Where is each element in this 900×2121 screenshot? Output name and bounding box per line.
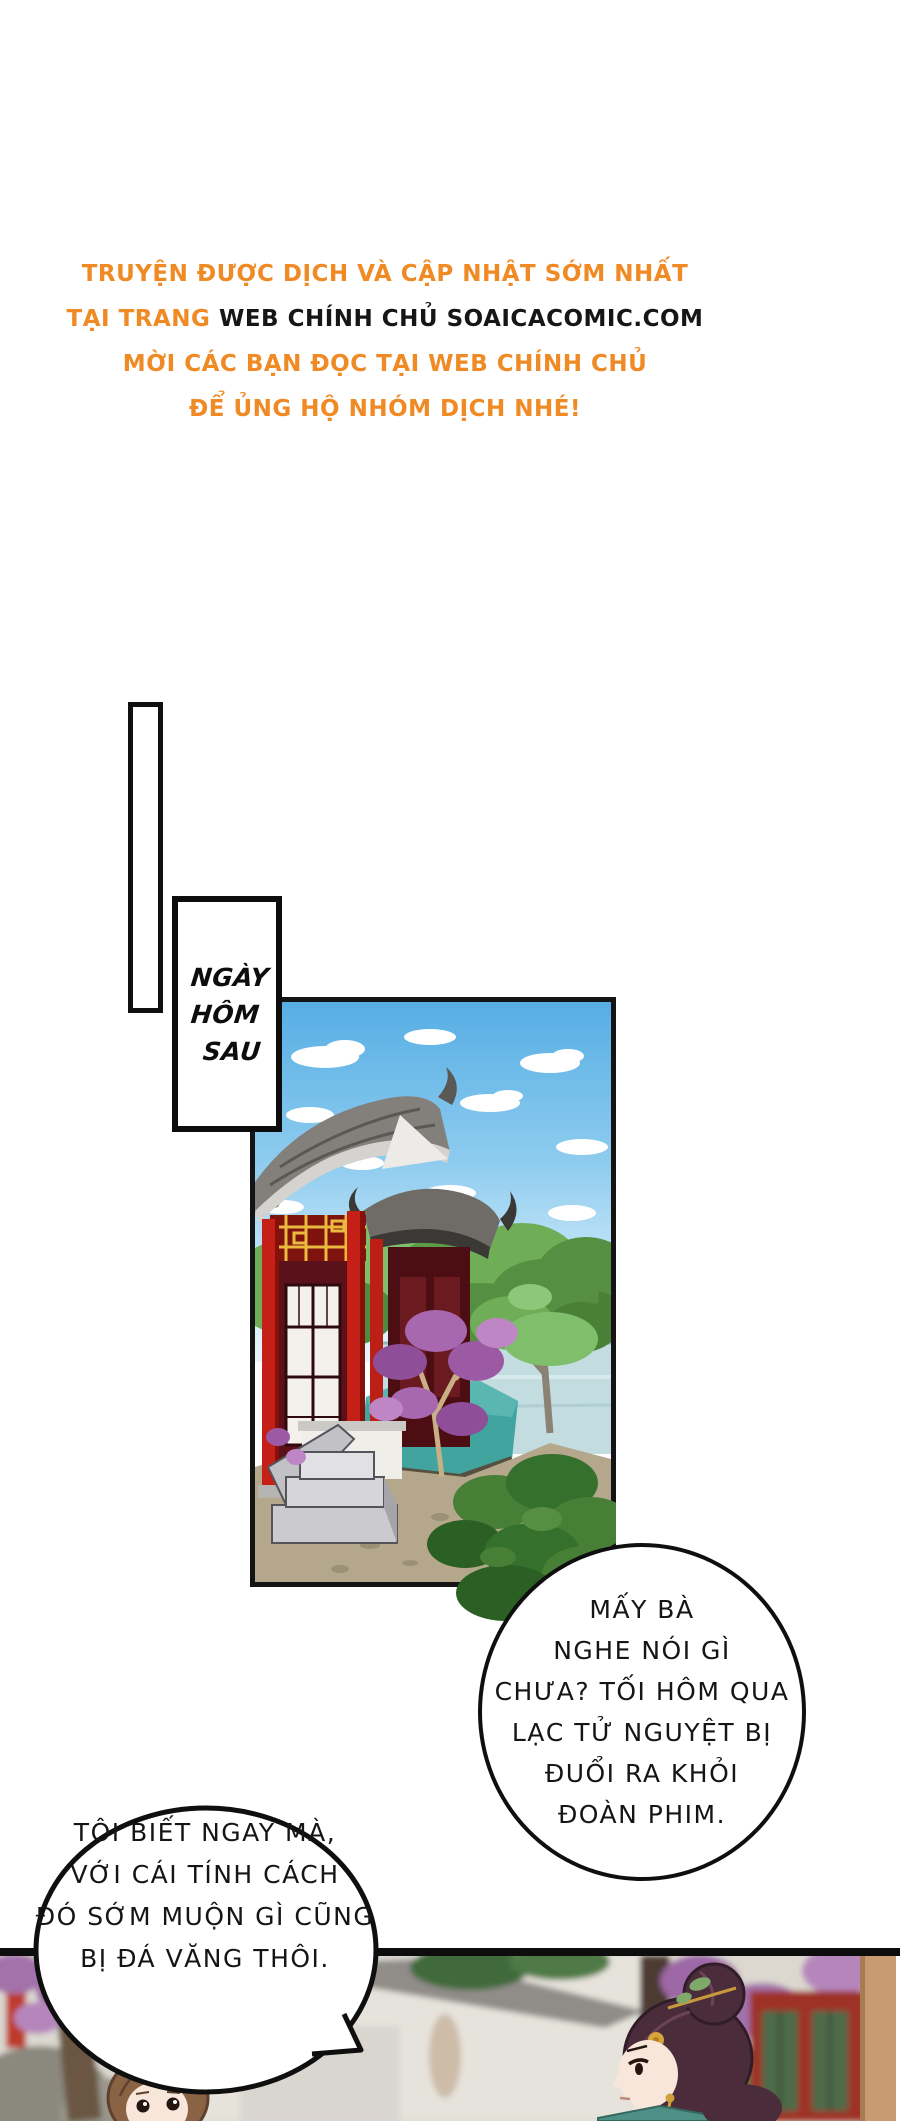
credits-site-name: WEB CHÍNH CHỦ SOAICACOMIC.COM [219, 306, 703, 332]
caption-line: HÔM [189, 996, 261, 1033]
reply-bubble-text: TÔI BIẾT NGAY MÀ, VỚI CÁI TÍNH CÁCH ĐÓ S… [30, 1812, 380, 1980]
credits-line-1: TRUYỆN ĐƯỢC DỊCH VÀ CẬP NHẬT SỚM NHẤT [20, 252, 750, 297]
bubble-line: ĐÓ SỚM MUỘN GÌ CŨNG [30, 1896, 380, 1938]
credits-line-4: ĐỂ ỦNG HỘ NHÓM DỊCH NHÉ! [20, 387, 750, 432]
comic-page: TRUYỆN ĐƯỢC DỊCH VÀ CẬP NHẬT SỚM NHẤT TẠ… [0, 0, 900, 2121]
credits-line-2: TẠI TRANG WEB CHÍNH CHỦ SOAICACOMIC.COM [20, 297, 750, 342]
time-caption-box: NGÀY HÔM SAU [172, 896, 282, 1132]
right-column [860, 1956, 900, 2121]
pavilion-panel [250, 997, 616, 1647]
bubble-line: ĐOÀN PHIM. [558, 1794, 726, 1835]
caption-line: NGÀY [189, 959, 271, 996]
credits-line-2-prefix: TẠI TRANG [67, 306, 211, 332]
mouth [620, 2098, 630, 2099]
bubble-line: BỊ ĐÁ VĂNG THÔI. [30, 1938, 380, 1980]
caption-line: SAU [201, 1033, 263, 1070]
bubble-line: ĐUỔI RA KHỎI [545, 1753, 739, 1794]
bubble-line: VỚI CÁI TÍNH CÁCH [30, 1854, 380, 1896]
bubble-line: NGHE NÓI GÌ [553, 1630, 731, 1671]
credits-line-3: MỜI CÁC BẠN ĐỌC TẠI WEB CHÍNH CHỦ [20, 342, 750, 387]
bubble-line: TÔI BIẾT NGAY MÀ, [30, 1812, 380, 1854]
narrow-panel-bar [128, 702, 163, 1013]
gossip-speech-bubble: MẤY BÀ NGHE NÓI GÌ CHƯA? TỐI HÔM QUA LẠC… [478, 1543, 806, 1881]
bubble-line: LẠC TỬ NGUYỆT BỊ [512, 1712, 772, 1753]
bubble-line: CHƯA? TỐI HÔM QUA [495, 1671, 790, 1712]
bubble-line: MẤY BÀ [589, 1589, 694, 1630]
gold-earring [666, 2094, 675, 2103]
translator-credits: TRUYỆN ĐƯỢC DỊCH VÀ CẬP NHẬT SỚM NHẤT TẠ… [20, 252, 750, 432]
